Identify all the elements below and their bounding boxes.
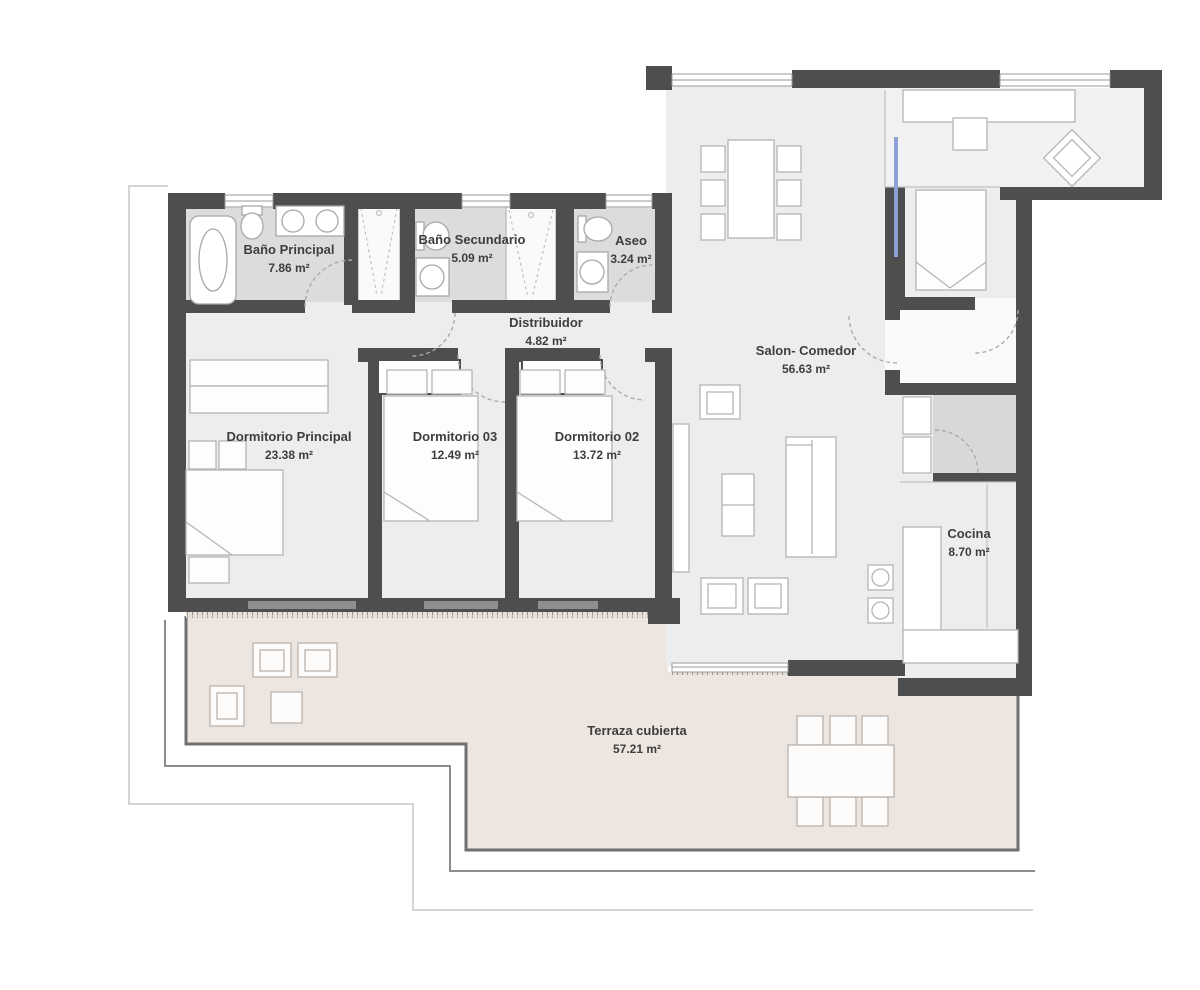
side-table-icon — [271, 692, 302, 723]
kitchen-counter-icon — [903, 527, 941, 631]
sofa-icon — [786, 437, 836, 557]
floor-plan-drawing — [0, 0, 1200, 990]
bed-icon — [916, 190, 986, 290]
toilet-icon — [416, 222, 449, 250]
outdoor-dining-set-icon — [788, 716, 894, 826]
dining-table-icon — [701, 140, 801, 240]
toilet-icon — [578, 216, 612, 242]
bed-icon — [517, 370, 612, 521]
floor-plan: Baño Principal 7.86 m² Baño Secundario 5… — [0, 0, 1200, 990]
toilet-icon — [241, 206, 263, 239]
bathtub-icon — [190, 216, 236, 304]
counter-icon — [903, 90, 1075, 122]
sink-icon — [416, 258, 449, 296]
kitchen-counter-icon — [903, 630, 1018, 663]
sideboard-icon — [673, 424, 689, 572]
wardrobe-icon — [190, 360, 328, 413]
appliance-icon — [953, 118, 987, 150]
coffee-table-icon — [722, 474, 754, 536]
armchair-icon — [700, 385, 740, 419]
sink-icon — [577, 252, 608, 292]
double-sink-icon — [276, 206, 344, 236]
glass-panel-accent — [894, 137, 898, 257]
